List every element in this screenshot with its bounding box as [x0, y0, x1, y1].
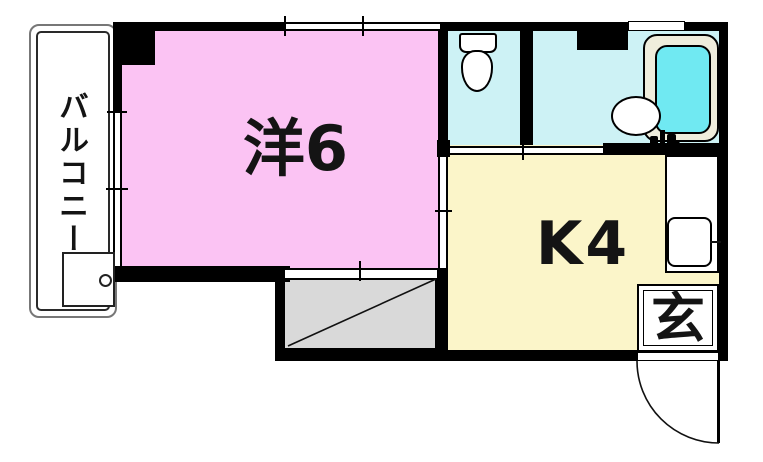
sanitary-sliding-door [450, 146, 603, 155]
western-room-label: 洋6 [163, 115, 428, 183]
window-tick [107, 111, 127, 113]
wall-bath-notch [577, 31, 628, 50]
wall-western-bottom [113, 266, 290, 282]
window-tick [359, 261, 361, 281]
wall-left-upper [113, 22, 122, 115]
wall-mid-corner [437, 140, 450, 157]
door-swing-icon [637, 361, 719, 443]
toilet-icon [455, 30, 500, 96]
wall-kitchen-bottom [437, 350, 638, 361]
kitchen-room-label: K4 [473, 213, 693, 275]
faucet-part [674, 141, 680, 147]
window-tick [362, 16, 364, 36]
western-kitchen-sliding-door [438, 157, 448, 268]
floor-plan-canvas: 洋6 K4 玄 バルコニー [0, 0, 763, 462]
toilet-bowl [461, 50, 493, 92]
entrance-label: 玄 [640, 289, 716, 349]
bath-faucet-icon [648, 129, 680, 148]
wall-closet-bottom [275, 348, 448, 361]
window-tick [106, 188, 128, 190]
window-tick [284, 16, 286, 36]
faucet-part [650, 136, 658, 145]
window-tick [522, 140, 524, 160]
washer-pan-drain [99, 274, 112, 287]
wall-right [719, 22, 728, 361]
entry-door-leaf [717, 361, 720, 443]
bathtub-water [655, 45, 711, 134]
entrance-threshold [637, 352, 719, 361]
bath-window [628, 21, 685, 31]
closet-area [285, 276, 437, 348]
wall-toilet-bath-divider [520, 29, 533, 145]
closet-sliding-door [285, 268, 437, 280]
wall-mid-upper [438, 22, 448, 142]
window-tick [435, 210, 452, 212]
balcony-label: バルコニー [51, 76, 89, 271]
faucet-part [660, 130, 665, 147]
